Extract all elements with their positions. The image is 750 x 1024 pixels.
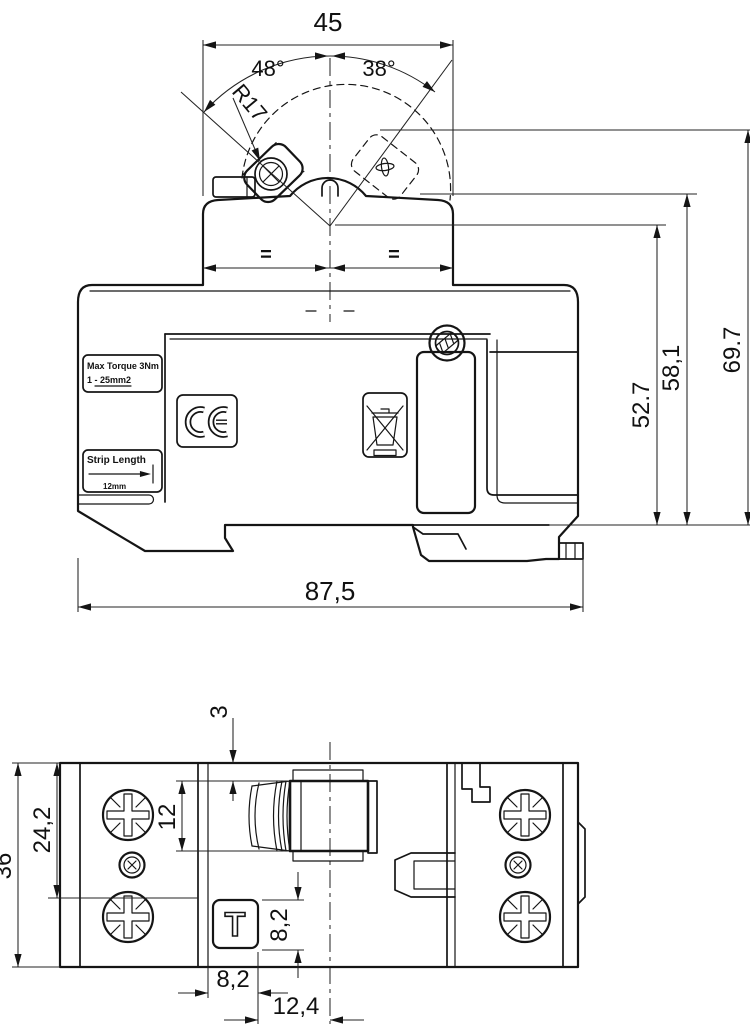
dim-height-3-value: 69.7 [719, 327, 746, 374]
front-face-right-wall [487, 340, 577, 495]
dim-terminal-height: 12 [154, 781, 288, 851]
dim-bottom-height-overall: 36 [0, 763, 60, 967]
dim-equal-right: = [388, 244, 400, 266]
dim-angle-right-value: 38° [362, 56, 395, 81]
din-clip-detail [413, 527, 466, 549]
dim-bottom-height-overall-value: 36 [0, 853, 17, 880]
pozidriv-screw-icon [500, 790, 550, 840]
dim-test-button-height-value: 8,2 [266, 908, 293, 941]
side-view: Max Torque 3Nm 1 - 25mm2 Strip Length 12… [78, 7, 750, 612]
dim-terminal-height-value: 12 [154, 804, 181, 831]
dim-terminal-top-offset-value: 3 [206, 705, 233, 718]
pozidriv-screw-icon [500, 892, 550, 942]
dim-screw-row-offset-value: 24,2 [29, 807, 56, 854]
dim-button-to-center: 12,4 [224, 993, 364, 1024]
din-foot-seams [566, 543, 575, 559]
strip-length-label: Strip Length 12mm [83, 450, 162, 492]
technical-drawing-page: Max Torque 3Nm 1 - 25mm2 Strip Length 12… [0, 0, 750, 1024]
weee-icon [363, 393, 407, 457]
dim-width-top-value: 45 [314, 7, 343, 37]
latch-detail [395, 853, 455, 897]
small-screw-icon [506, 853, 531, 878]
dim-width-overall-value: 87,5 [305, 576, 356, 606]
dim-height-1-value: 52.7 [628, 382, 655, 429]
max-torque-line2: 1 - 25mm2 [87, 375, 131, 385]
small-screw-icon [120, 853, 145, 878]
strip-length-title: Strip Length [87, 455, 146, 466]
pozidriv-screw-icon [103, 790, 153, 840]
rcd-dimension-drawing: Max Torque 3Nm 1 - 25mm2 Strip Length 12… [0, 0, 750, 1024]
terminal-cover-panel [417, 352, 475, 513]
lever-swing-arc [242, 84, 451, 200]
dim-terminal-top-offset: 3 [206, 705, 287, 801]
din-foot [559, 543, 583, 559]
terminal-screw-icon [430, 326, 465, 361]
front-face-right-wall2 [497, 340, 577, 503]
dim-test-button-height: 8,2 [262, 872, 304, 978]
strip-length-value: 12mm [103, 482, 126, 491]
dim-lever-radius: R17 [227, 79, 272, 162]
max-torque-line1: Max Torque 3Nm [87, 361, 159, 371]
bottom-view: T 36 24,2 12 [0, 705, 585, 1024]
dim-button-to-center-value: 12,4 [273, 993, 320, 1020]
dim-height-2-value: 58,1 [658, 345, 685, 392]
max-torque-label: Max Torque 3Nm 1 - 25mm2 [83, 355, 162, 392]
pozidriv-screw-icon [103, 892, 153, 942]
hook-detail [462, 763, 490, 802]
dim-angle-left-value: 48° [251, 56, 284, 81]
dim-test-button-width-value: 8,2 [216, 966, 249, 993]
bottom-body-outline [60, 763, 578, 967]
test-button-label: T [225, 906, 246, 944]
test-button: T [213, 900, 258, 948]
terminal-connector [249, 770, 377, 861]
dim-equal-halves: = = [203, 244, 453, 272]
lower-left-ledge [78, 495, 154, 504]
dim-heights-right: 52.7 58,1 69.7 [335, 130, 750, 525]
dim-test-button-width: 8,2 [178, 952, 288, 1024]
ce-mark-icon [177, 395, 237, 447]
dim-equal-left: = [260, 244, 272, 266]
toggle-lever-on [213, 140, 307, 206]
